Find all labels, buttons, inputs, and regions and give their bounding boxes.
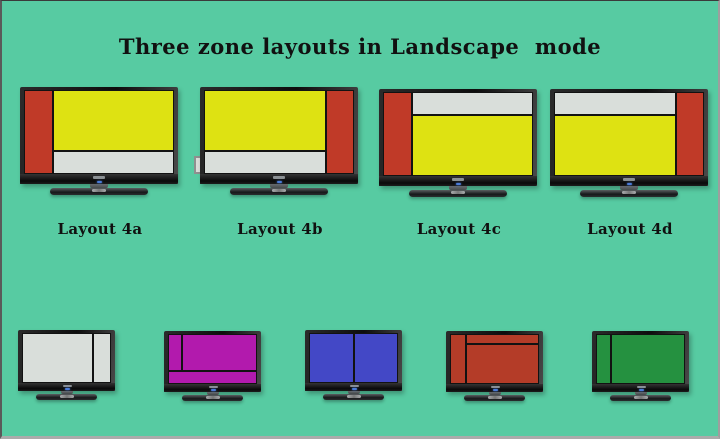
- zone-left-strip: [596, 334, 611, 384]
- zone-main: [611, 334, 685, 384]
- tv-screen: [309, 333, 398, 383]
- label-layout-4d: Layout 4d: [550, 220, 710, 238]
- tv-frame: [200, 87, 358, 184]
- tv-frame: [379, 89, 537, 186]
- tv-stand-base: [610, 395, 670, 401]
- tv-bottom-bezel: [164, 384, 261, 392]
- zone-top-strip: [466, 334, 539, 344]
- tv-bottom-bezel: [18, 383, 115, 391]
- tv-frame: [446, 331, 543, 392]
- tv-screen: [450, 334, 539, 384]
- tv-brand-logo: [63, 385, 72, 387]
- tv-stand-base: [230, 188, 328, 195]
- zone-main: [22, 333, 93, 383]
- tv-brand-logo: [452, 178, 464, 181]
- tv-stand-base: [50, 188, 148, 195]
- tv-thumb-green: [592, 331, 689, 401]
- tv-brand-logo: [209, 386, 218, 388]
- power-led-icon: [211, 389, 216, 391]
- tv-brand-logo: [93, 176, 105, 179]
- tv-bottom-bezel: [379, 176, 537, 186]
- tv-frame: [305, 330, 402, 391]
- tv-bottom-bezel: [200, 174, 358, 184]
- tv-screen: [24, 90, 174, 174]
- power-led-icon: [65, 388, 70, 390]
- tv-screen: [168, 334, 257, 384]
- tv-brand-logo: [273, 176, 285, 179]
- zone-left-half: [309, 333, 354, 383]
- zone-left-strip: [450, 334, 466, 384]
- zone-yellow-main: [554, 115, 676, 176]
- tv-stand-base: [464, 395, 524, 401]
- tv-stand-base: [182, 395, 242, 401]
- zone-gray-bottom-strip: [53, 151, 175, 174]
- tv-frame: [164, 331, 261, 392]
- zone-red-left-strip: [383, 92, 412, 176]
- power-led-icon: [277, 181, 282, 183]
- label-layout-4c: Layout 4c: [379, 220, 539, 238]
- tv-screen: [204, 90, 354, 174]
- tv-thumb-gray: [18, 330, 115, 400]
- tv-brand-logo: [623, 178, 635, 181]
- tv-stand-base: [323, 394, 383, 400]
- tv-bottom-bezel: [446, 384, 543, 392]
- tv-layout-4c: [379, 89, 537, 197]
- zone-main: [466, 344, 539, 384]
- diagram-canvas: Three zone layouts in Landscape mode: [0, 0, 720, 439]
- tv-frame: [18, 330, 115, 391]
- zone-left-strip: [168, 334, 182, 371]
- tv-thumb-blue: [305, 330, 402, 400]
- label-layout-4a: Layout 4a: [20, 220, 180, 238]
- zone-gray-bottom-strip: [204, 151, 326, 174]
- tv-bottom-bezel: [20, 174, 178, 184]
- tv-screen: [383, 92, 533, 176]
- tv-frame: [20, 87, 178, 184]
- label-layout-4b: Layout 4b: [200, 220, 360, 238]
- tv-bottom-bezel: [550, 176, 708, 186]
- zone-right-half: [354, 333, 399, 383]
- tv-brand-logo: [350, 385, 359, 387]
- zone-red-right-strip: [676, 92, 705, 176]
- tv-stand-base: [409, 190, 507, 197]
- tv-thumb-red: [446, 331, 543, 401]
- tv-bottom-bezel: [592, 384, 689, 392]
- zone-bottom-strip: [168, 371, 257, 385]
- tv-frame: [550, 89, 708, 186]
- power-led-icon: [627, 183, 632, 185]
- tv-thumb-magenta: [164, 331, 261, 401]
- tv-screen: [554, 92, 704, 176]
- zone-gray-top-strip: [412, 92, 534, 115]
- tv-screen: [22, 333, 111, 383]
- power-led-icon: [352, 388, 357, 390]
- tv-stand-base: [36, 394, 96, 400]
- tv-bottom-bezel: [305, 383, 402, 391]
- tv-stand-base: [580, 190, 678, 197]
- zone-red-left-strip: [24, 90, 53, 174]
- zone-yellow-main: [204, 90, 326, 151]
- tv-frame: [592, 331, 689, 392]
- power-led-icon: [493, 389, 498, 391]
- tv-layout-4d: [550, 89, 708, 197]
- power-led-icon: [639, 389, 644, 391]
- power-led-icon: [97, 181, 102, 183]
- tv-layout-4a: [20, 87, 178, 195]
- zone-yellow-main: [412, 115, 534, 176]
- page-title: Three zone layouts in Landscape mode: [2, 34, 718, 59]
- tv-layout-4b: [200, 87, 358, 195]
- zone-gray-top-strip: [554, 92, 676, 115]
- tv-brand-logo: [637, 386, 646, 388]
- tv-brand-logo: [491, 386, 500, 388]
- power-led-icon: [456, 183, 461, 185]
- zone-main: [182, 334, 257, 371]
- zone-red-right-strip: [326, 90, 355, 174]
- zone-right-strip: [93, 333, 111, 383]
- tv-screen: [596, 334, 685, 384]
- zone-yellow-main: [53, 90, 175, 151]
